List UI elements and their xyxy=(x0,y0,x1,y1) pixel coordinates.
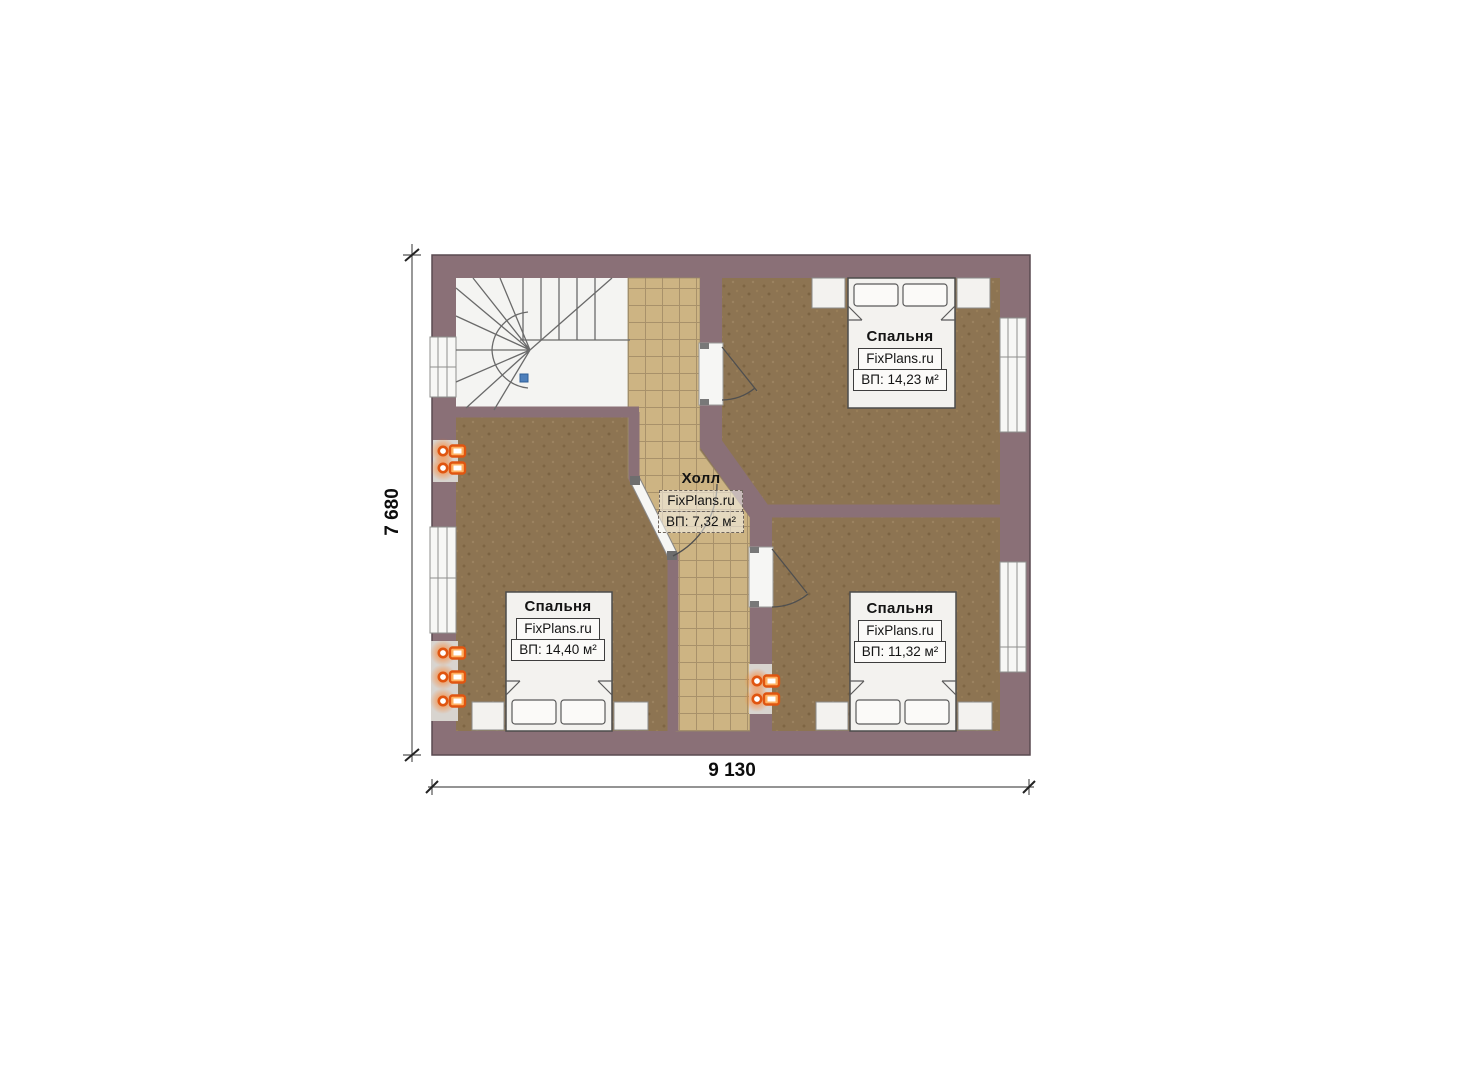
nightstand xyxy=(614,702,648,730)
nightstand xyxy=(958,702,992,730)
dimension-line-height xyxy=(403,244,421,762)
stair-marker-icon xyxy=(520,374,528,382)
room-label-bedroom-bottom-left: Спальня FixPlans.ru ВП: 14,40 м² xyxy=(499,598,617,661)
window-icon xyxy=(430,337,456,397)
nightstand xyxy=(472,702,504,730)
pillow xyxy=(512,700,556,724)
area-badge: ВП: 14,40 м² xyxy=(511,639,605,661)
nightstand xyxy=(957,278,990,308)
pillow xyxy=(561,700,605,724)
dimension-label-width: 9 130 xyxy=(632,760,832,782)
dimension-label-height: 7 680 xyxy=(382,432,404,592)
brand-badge: FixPlans.ru xyxy=(858,348,942,370)
pillow xyxy=(854,284,898,306)
nightstand xyxy=(816,702,848,730)
room-name: Спальня xyxy=(841,600,959,617)
pillow xyxy=(903,284,947,306)
room-label-bedroom-bottom-right: Спальня FixPlans.ru ВП: 11,32 м² xyxy=(841,600,959,663)
nightstand xyxy=(812,278,845,308)
brand-badge: FixPlans.ru xyxy=(858,620,942,642)
room-label-bedroom-top-right: Спальня FixPlans.ru ВП: 14,23 м² xyxy=(841,328,959,391)
stairwell-floor xyxy=(456,278,630,410)
window-icon xyxy=(430,527,456,633)
window-icon xyxy=(1000,318,1026,432)
room-name: Холл xyxy=(644,470,758,487)
brand-badge: FixPlans.ru xyxy=(516,618,600,640)
floor-plan-page: Спальня FixPlans.ru ВП: 14,23 м² Холл Fi… xyxy=(0,0,1474,1080)
floor-plan-drawing xyxy=(0,0,1474,1080)
brand-badge: FixPlans.ru xyxy=(659,490,743,512)
room-name: Спальня xyxy=(499,598,617,615)
window-icon xyxy=(1000,562,1026,672)
room-name: Спальня xyxy=(841,328,959,345)
room-label-hall: Холл FixPlans.ru ВП: 7,32 м² xyxy=(644,470,758,533)
pillow xyxy=(905,700,949,724)
pillow xyxy=(856,700,900,724)
area-badge: ВП: 11,32 м² xyxy=(854,641,947,663)
area-badge: ВП: 7,32 м² xyxy=(658,511,744,533)
area-badge: ВП: 14,23 м² xyxy=(853,369,947,391)
